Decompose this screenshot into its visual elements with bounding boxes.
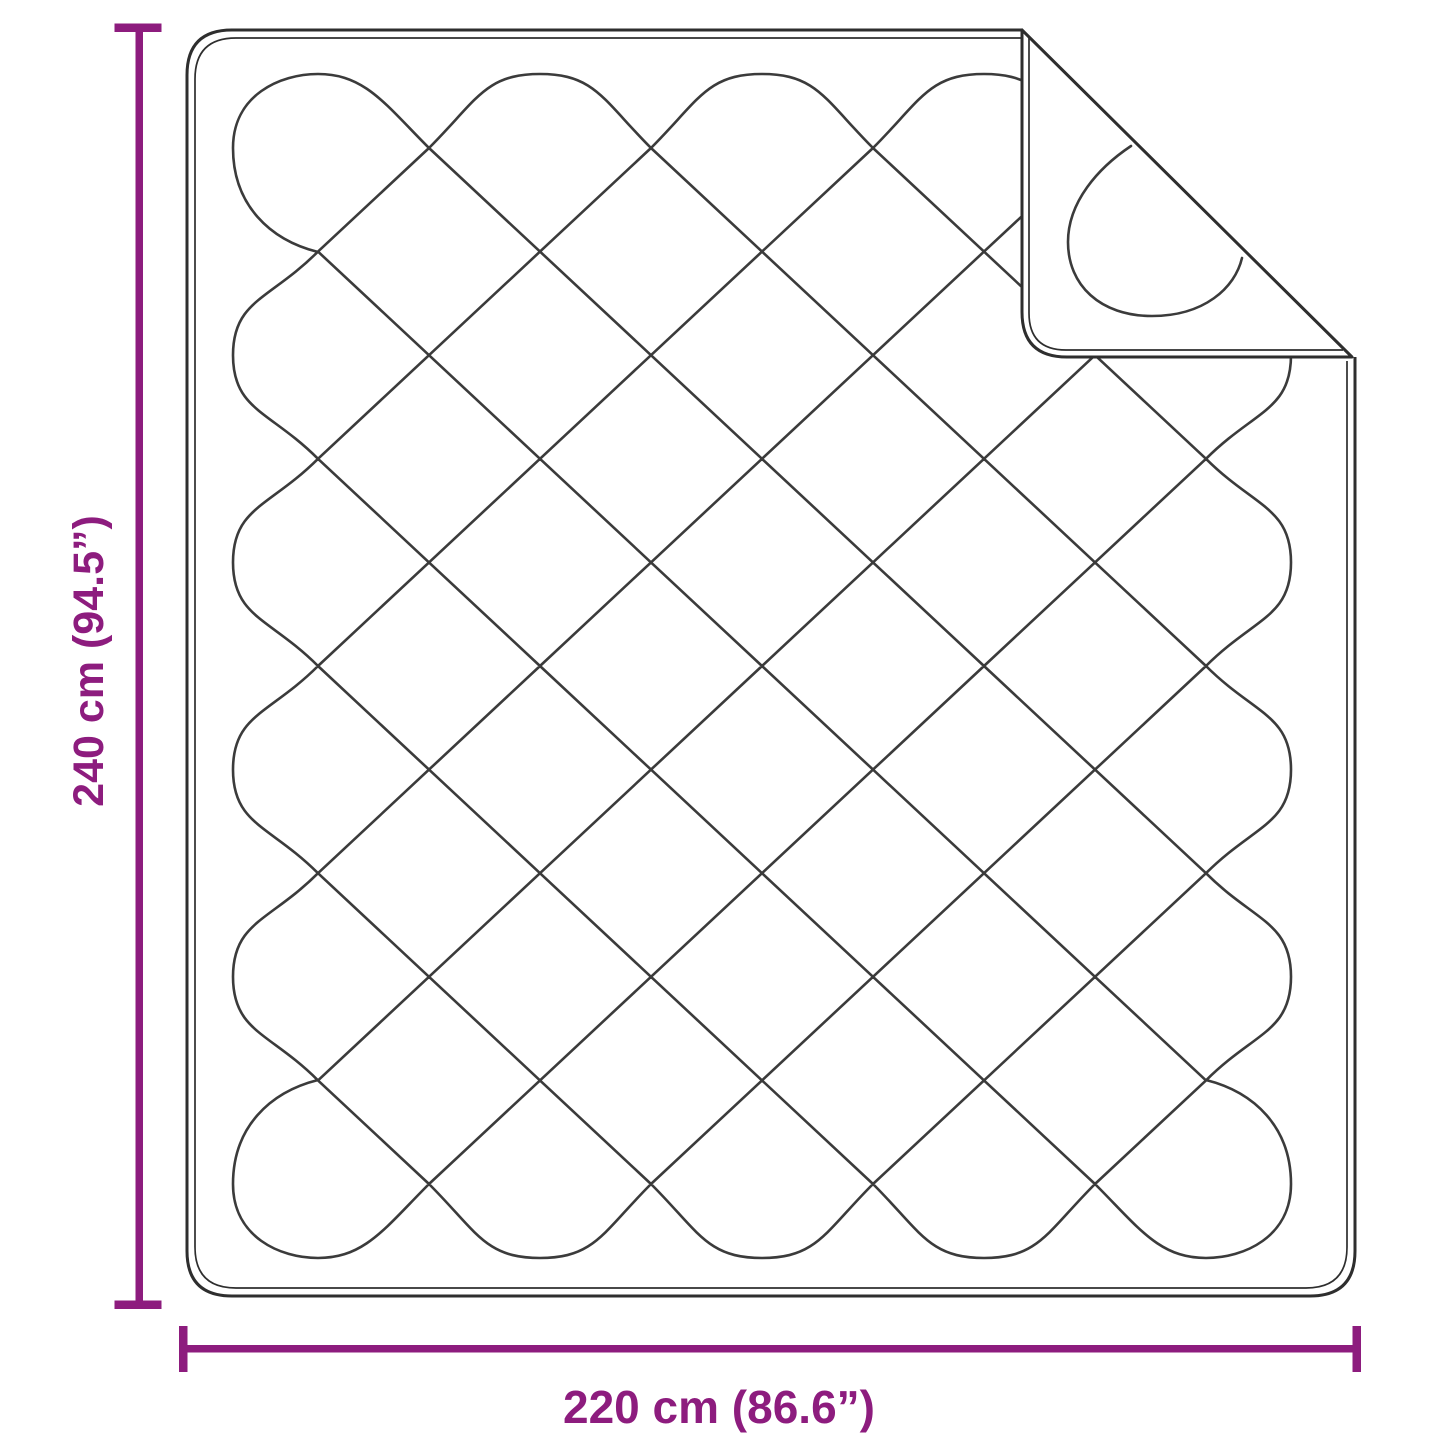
folded-corner-flap — [1022, 30, 1352, 357]
blanket-dimension-svg: 240 cm (94.5”) 220 cm (86.6”) — [0, 0, 1445, 1445]
height-dimension-label: 240 cm (94.5”) — [65, 515, 113, 807]
height-dimension-cap-bottom — [115, 1301, 162, 1310]
width-dimension-cap-right — [1353, 1326, 1362, 1372]
folded-corner — [1022, 30, 1352, 357]
width-dimension-cap-left — [179, 1326, 188, 1372]
height-dimension: 240 cm (94.5”) — [65, 24, 162, 1310]
quilted-blanket — [187, 30, 1355, 1296]
height-dimension-line — [136, 27, 144, 1305]
width-dimension-label: 220 cm (86.6”) — [563, 1381, 875, 1433]
width-dimension-line — [183, 1345, 1357, 1353]
height-dimension-cap-top — [115, 24, 162, 33]
width-dimension: 220 cm (86.6”) — [179, 1326, 1361, 1433]
product-dimension-diagram: 240 cm (94.5”) 220 cm (86.6”) — [0, 0, 1445, 1445]
